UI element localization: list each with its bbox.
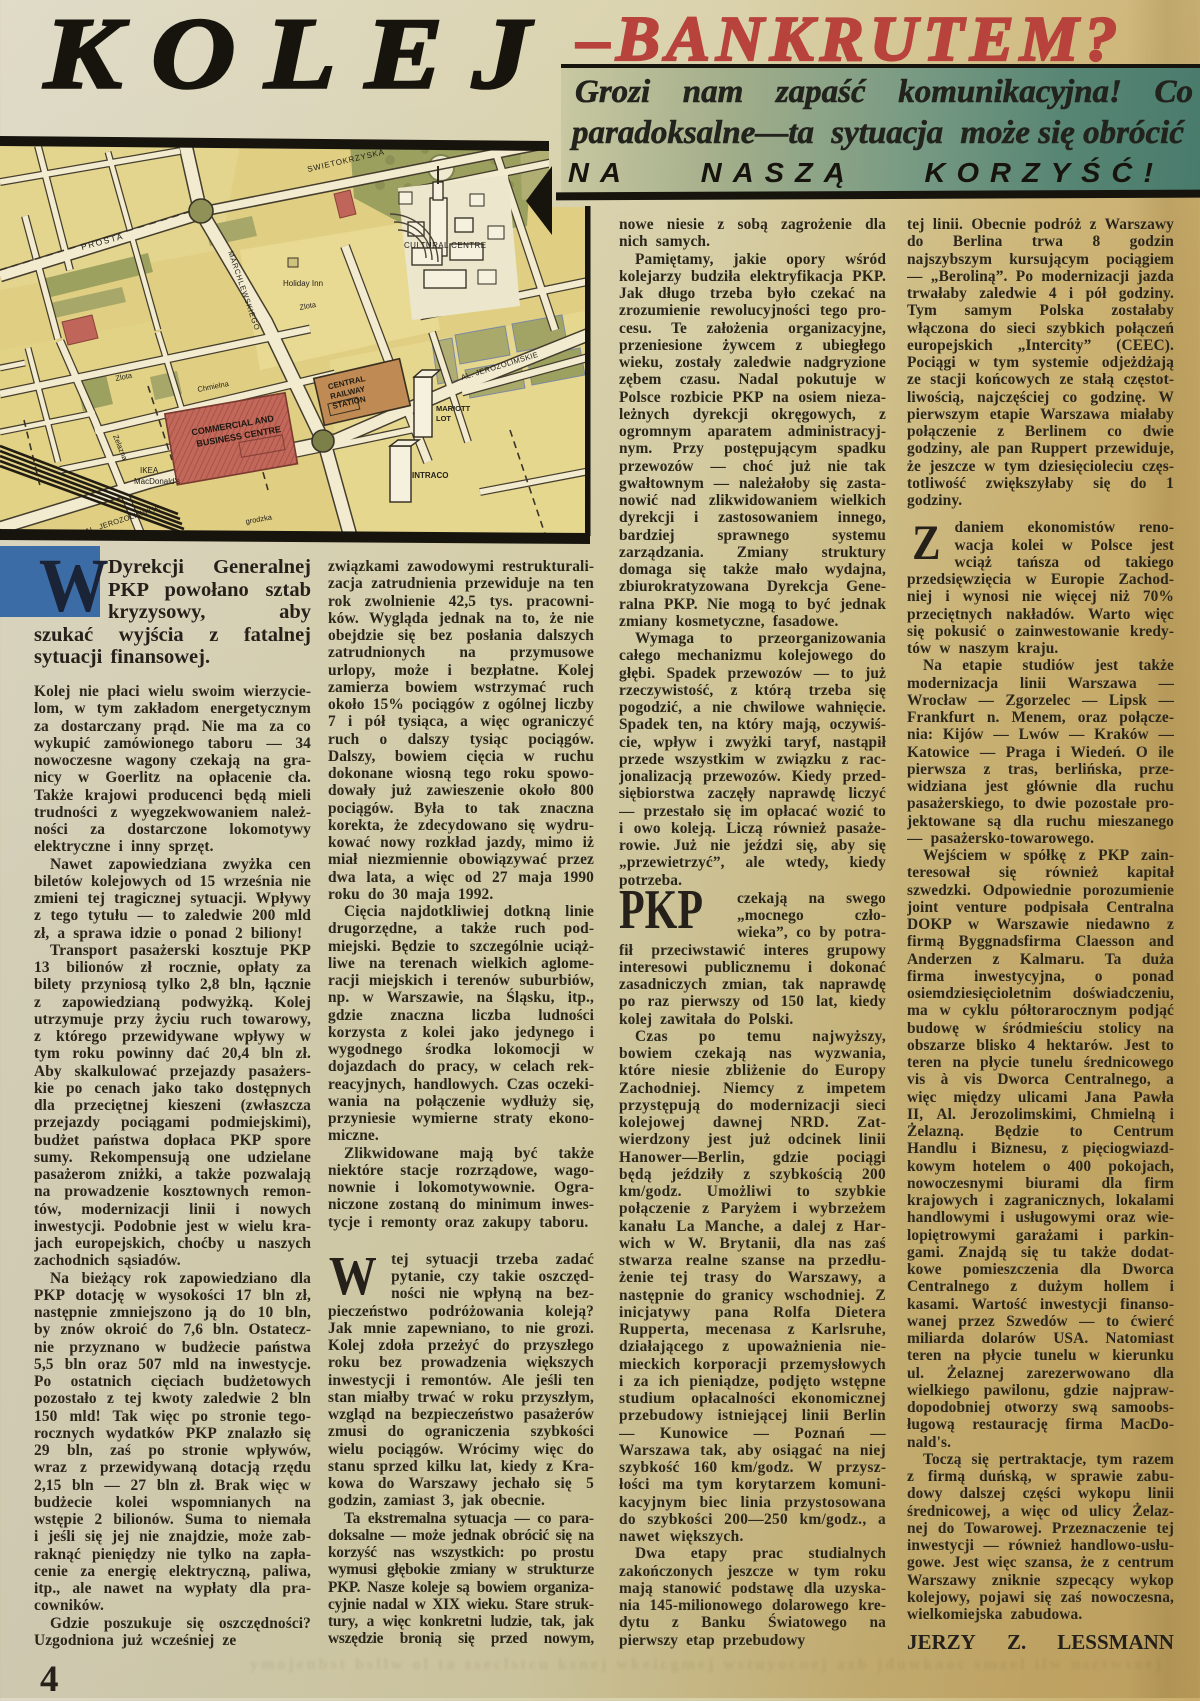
svg-text:IKEA: IKEA — [140, 466, 159, 475]
svg-text:CULTURAL CENTRE: CULTURAL CENTRE — [404, 241, 486, 250]
svg-text:INTRACO: INTRACO — [412, 471, 448, 480]
svg-text:LOT: LOT — [436, 414, 451, 423]
svg-text:Holiday Inn: Holiday Inn — [283, 279, 323, 288]
svg-text:MacDonald's: MacDonald's — [134, 477, 180, 486]
svg-text:MARIOTT: MARIOTT — [436, 404, 471, 413]
